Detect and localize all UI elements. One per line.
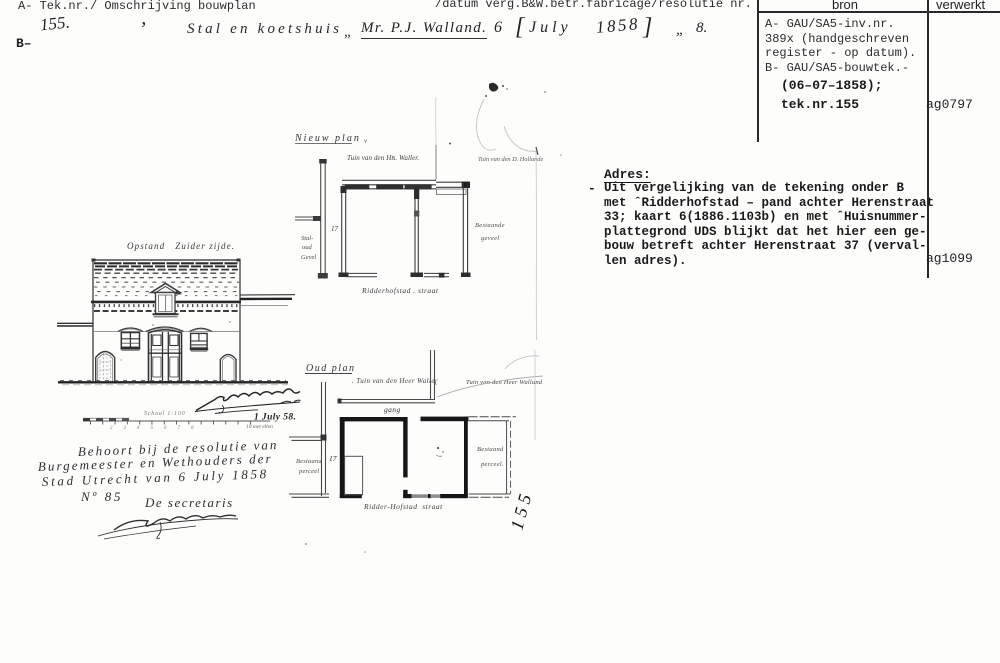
svg-text:Stal-: Stal-	[301, 235, 313, 242]
svg-text:Tuin van den Hʦ. Waller.: Tuin van den Hʦ. Waller.	[347, 154, 419, 162]
svg-text:Opstand Zuider zijde.: Opstand Zuider zijde.	[127, 241, 235, 251]
svg-text:Tuin van den D. Hollande: Tuin van den D. Hollande	[478, 156, 543, 163]
svg-text:2345678: 2345678	[110, 426, 205, 431]
svg-text:Ridder-Hofstad straat: Ridder-Hofstad straat	[363, 502, 443, 511]
svg-text:17: 17	[331, 225, 339, 233]
svg-text:v: v	[364, 137, 368, 145]
svg-text:Schaal 1:100: Schaal 1:100	[144, 411, 185, 417]
svg-text:Bestaande: Bestaande	[475, 222, 505, 229]
svg-text:Bestaand: Bestaand	[296, 458, 322, 465]
svg-text:. Tuin van den Heer Walleʗ: . Tuin van den Heer Walleʗ	[352, 377, 439, 385]
svg-text:Nieuw plan: Nieuw plan	[294, 133, 361, 144]
svg-text:perceel.: perceel.	[480, 461, 504, 468]
svg-text:10 met ellen: 10 met ellen	[246, 424, 273, 430]
svg-text:Gevel: Gevel	[301, 254, 316, 261]
svg-text:17: 17	[329, 454, 337, 463]
svg-text:perceel: perceel	[298, 468, 319, 475]
svg-text:De secretaris: De secretaris	[144, 495, 234, 510]
svg-text:155: 155	[507, 488, 537, 532]
svg-text:Nº 85: Nº 85	[80, 489, 123, 504]
svg-text:geveel: geveel	[481, 235, 499, 242]
svg-text:gang: gang	[384, 405, 401, 414]
svg-text:Bestaand: Bestaand	[477, 446, 504, 453]
svg-text:oud: oud	[302, 244, 313, 251]
svg-text:Ridderhofstad . straat: Ridderhofstad . straat	[361, 286, 439, 295]
svg-text:Oud plan: Oud plan	[306, 363, 356, 374]
